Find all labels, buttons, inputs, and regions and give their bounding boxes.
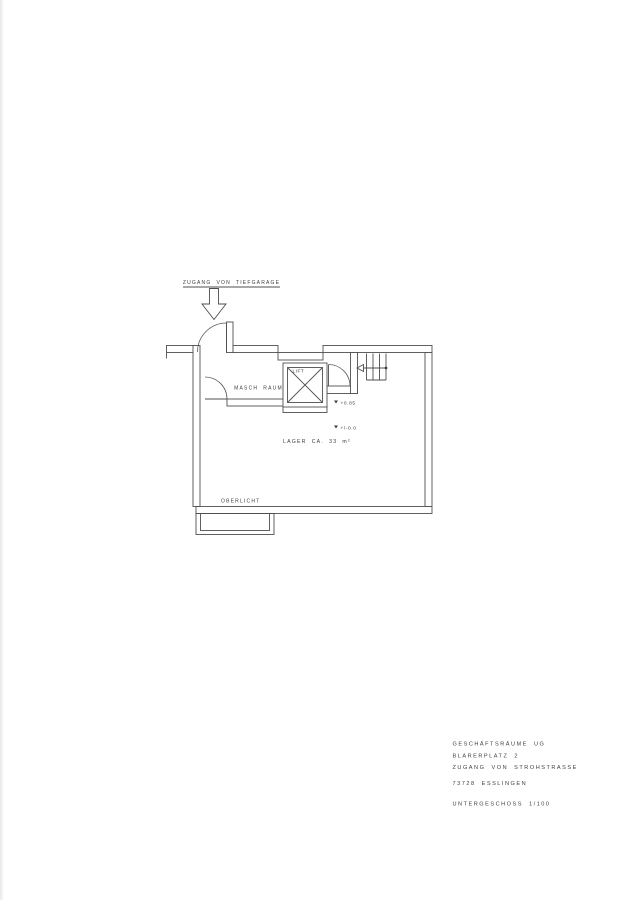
- level-landing-value: +0.85: [341, 401, 356, 407]
- corridor-door-swing: [205, 377, 227, 399]
- title-line-access: ZUGANG VON STROHSTRASSE: [453, 765, 578, 771]
- masch-raum-label: MASCH RAUM: [234, 386, 283, 392]
- title-line-building: GESCHÄFTSRÄUME UG: [453, 741, 546, 748]
- skylight-outer: [196, 514, 274, 535]
- wall-top-west: [233, 346, 278, 353]
- lobby-door-swing: [329, 365, 351, 387]
- level-floor-value: +/-0.0: [341, 426, 357, 432]
- title-block: GESCHÄFTSRÄUME UG BLARERPLATZ 2 ZUGANG V…: [453, 741, 578, 808]
- wall-top-east: [323, 346, 432, 353]
- title-line-address: BLARERPLATZ 2: [453, 754, 520, 760]
- level-marker-landing-icon: [334, 401, 338, 404]
- wall-vestibule-spur: [227, 322, 234, 353]
- stairs: [357, 354, 387, 381]
- entrance-door-swing: [198, 323, 227, 352]
- lager-label: LAGER CA. 33 m²: [283, 439, 351, 445]
- oberlicht-label: OBERLICHT: [221, 499, 260, 505]
- title-line-city: 73728 ESSLINGEN: [453, 781, 528, 787]
- wall-right: [425, 353, 432, 507]
- skylight: [196, 514, 274, 535]
- lift-shaft: LIFT: [283, 363, 327, 407]
- title-line-floor-scale: UNTERGESCHOSS 1/100: [453, 802, 551, 808]
- skylight-inner: [201, 514, 270, 531]
- lift-label: LIFT: [293, 369, 305, 374]
- wall-corridor-south: [227, 399, 285, 406]
- entrance-arrow-icon: [202, 289, 226, 320]
- wall-bottom: [196, 507, 432, 514]
- entrance-annotation: ZUGANG VON TIEFGARAGE: [183, 280, 280, 320]
- stair-start-dot: [385, 367, 388, 370]
- wall-landing-west: [351, 353, 358, 394]
- scanned-floor-plan-page: ZUGANG VON TIEFGARAGE LIFT: [0, 0, 636, 900]
- wall-left: [193, 346, 200, 507]
- level-marker-floor-icon: [334, 426, 338, 429]
- floor-plan-svg: ZUGANG VON TIEFGARAGE LIFT: [0, 0, 636, 900]
- entrance-label: ZUGANG VON TIEFGARAGE: [183, 280, 280, 286]
- wall-top-recess: [278, 353, 323, 361]
- walls: [167, 322, 433, 514]
- stair-direction-arrow-icon: [357, 365, 364, 372]
